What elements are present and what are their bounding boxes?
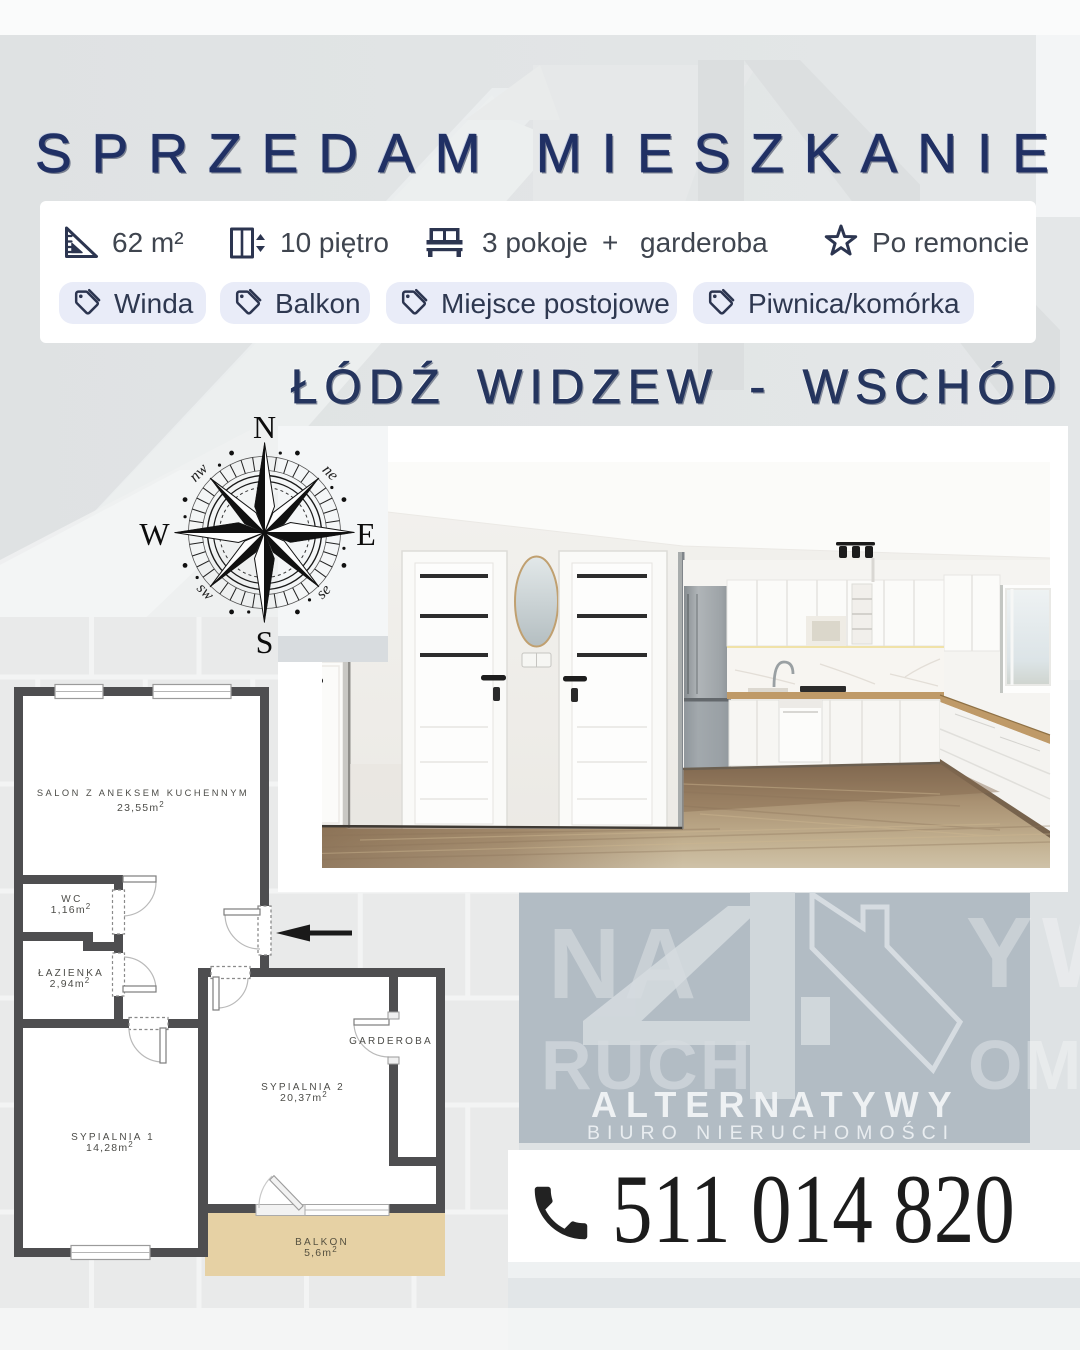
svg-text:E: E xyxy=(356,516,376,552)
svg-text:1,16m2: 1,16m2 xyxy=(51,902,92,916)
svg-text:SALON Z ANEKSEM KUCHENNYM: SALON Z ANEKSEM KUCHENNYM xyxy=(37,788,249,798)
svg-text:N: N xyxy=(253,409,276,445)
svg-text:GARDEROBA: GARDEROBA xyxy=(349,1036,433,1047)
svg-text:W: W xyxy=(139,516,170,552)
svg-text:ne: ne xyxy=(319,461,342,484)
svg-text:M: M xyxy=(1023,1026,1080,1104)
svg-text:S: S xyxy=(256,624,274,659)
svg-text:ALTERNATYWY: ALTERNATYWY xyxy=(591,1084,961,1125)
svg-text:23,55m2: 23,55m2 xyxy=(117,800,165,814)
svg-text:14,28m2: 14,28m2 xyxy=(86,1140,134,1154)
svg-text:W: W xyxy=(1042,897,1080,1009)
svg-text:BIURO NIERUCHOMOŚCI: BIURO NIERUCHOMOŚCI xyxy=(587,1120,955,1144)
svg-text:O: O xyxy=(968,1026,1022,1104)
svg-text:2,94m2: 2,94m2 xyxy=(50,976,91,990)
svg-text:20,37m2: 20,37m2 xyxy=(280,1090,328,1104)
svg-text:Y: Y xyxy=(966,897,1033,1009)
